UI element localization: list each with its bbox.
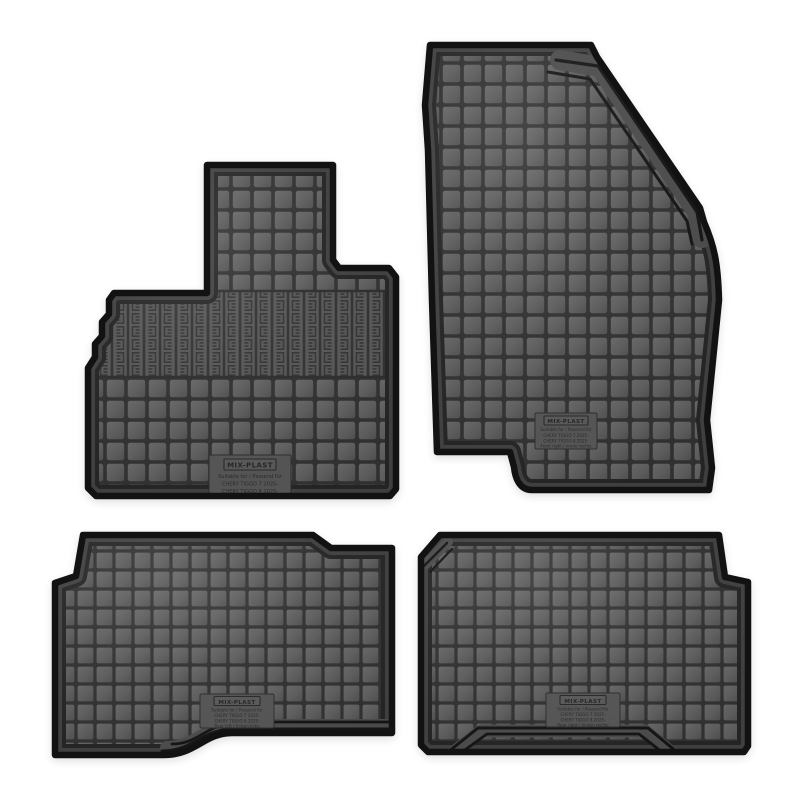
car-floor-mats-photo: MIX-PLAST Suitable for / Passend für CHE… — [0, 0, 800, 800]
label-suitable: Suitable for / Passend für — [211, 708, 263, 713]
floor-mat-rear-left: MIX-PLAST Suitable for / Passend für CHE… — [48, 532, 396, 760]
label-model1: CHERY TIGGO 7 2025- — [214, 713, 260, 718]
label-model1: CHERY TIGGO 7 2025- — [543, 433, 589, 438]
label-position: Rear left / hinten links — [214, 723, 259, 728]
label-model1: CHERY TIGGO 7 2025- — [222, 482, 279, 488]
product-photo: MIX-PLAST Suitable for / Passend für CHE… — [0, 0, 800, 800]
label-suitable: Suitable for / Passend für — [540, 427, 592, 432]
label-brand: MIX-PLAST — [218, 700, 255, 706]
label-model1: CHERY TIGGO 7 2025- — [560, 712, 606, 717]
mat-label-plate: MIX-PLAST Suitable for / Passend für CHE… — [535, 413, 597, 449]
floor-mat-front-right: MIX-PLAST Suitable for / Passend für CHE… — [420, 40, 722, 495]
label-position: Rear right / hinten rechts — [557, 722, 608, 727]
label-suitable: Suitable for / Passend für — [557, 707, 609, 712]
floor-mat-front-left: MIX-PLAST Suitable for / Passend für CHE… — [85, 162, 400, 502]
label-brand: MIX-PLAST — [547, 419, 584, 425]
mat-label-plate: MIX-PLAST Suitable for / Passend für CHE… — [546, 693, 620, 727]
label-brand: MIX-PLAST — [227, 462, 273, 470]
mat-label-plate: MIX-PLAST Suitable for / Passend für CHE… — [200, 694, 274, 728]
label-brand: MIX-PLAST — [564, 699, 601, 705]
floor-mat-rear-right: MIX-PLAST Suitable for / Passend für CHE… — [418, 532, 752, 756]
label-position: Front right / vorne rechts — [541, 444, 592, 449]
label-suitable: Suitable for / Passend für — [218, 474, 283, 480]
